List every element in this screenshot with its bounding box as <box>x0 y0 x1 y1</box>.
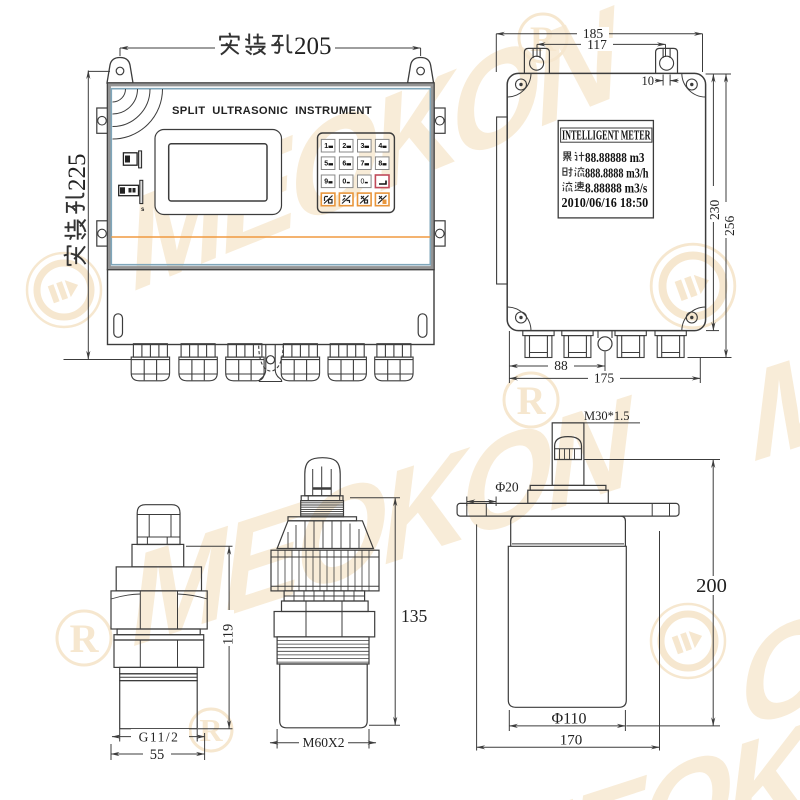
svg-text:5: 5 <box>324 161 328 168</box>
svg-text:2010/06/16 18:50: 2010/06/16 18:50 <box>562 196 649 211</box>
svg-text:6: 6 <box>342 161 346 168</box>
svg-text:200: 200 <box>696 575 727 597</box>
svg-text:M30*1.5: M30*1.5 <box>584 409 630 423</box>
svg-text:256: 256 <box>722 216 737 237</box>
svg-text:0: 0 <box>342 179 346 186</box>
svg-text:4: 4 <box>378 143 382 150</box>
svg-text:R: R <box>530 19 557 59</box>
svg-text:s: s <box>141 207 145 213</box>
svg-text:888.8888 m3/h: 888.8888 m3/h <box>585 165 649 181</box>
svg-text:205: 205 <box>294 33 332 60</box>
svg-text:1: 1 <box>324 143 328 150</box>
svg-text:G11/2: G11/2 <box>139 730 180 745</box>
svg-text:SPLIT ULTRASONIC INSTRUMENT: SPLIT ULTRASONIC INSTRUMENT <box>172 105 372 117</box>
svg-text:230: 230 <box>707 200 722 221</box>
svg-text:225: 225 <box>64 154 91 192</box>
svg-text:117: 117 <box>587 37 607 52</box>
svg-text:88: 88 <box>554 358 568 373</box>
svg-text:55: 55 <box>150 747 165 763</box>
svg-text:88.88888 m3: 88.88888 m3 <box>585 150 644 165</box>
svg-text:0: 0 <box>361 179 365 186</box>
svg-text:10: 10 <box>642 74 655 88</box>
svg-text:135: 135 <box>401 606 428 626</box>
svg-text:Φ20: Φ20 <box>495 480 519 495</box>
svg-text:Φ110: Φ110 <box>551 711 586 728</box>
svg-text:170: 170 <box>560 733 583 749</box>
svg-text:9: 9 <box>324 179 328 186</box>
svg-text:M60X2: M60X2 <box>302 735 344 750</box>
svg-text:7: 7 <box>361 161 365 168</box>
svg-text:8.88888 m3/s: 8.88888 m3/s <box>585 180 647 195</box>
svg-text:175: 175 <box>594 371 615 386</box>
svg-text:2: 2 <box>342 143 346 150</box>
svg-text:R: R <box>517 378 547 423</box>
svg-text:INTELLIGENT METER: INTELLIGENT METER <box>562 128 651 143</box>
svg-text:8: 8 <box>378 161 382 168</box>
svg-text:119: 119 <box>221 624 237 645</box>
svg-text:3: 3 <box>361 143 365 150</box>
svg-text:R: R <box>199 712 223 748</box>
svg-text:R: R <box>70 616 100 661</box>
